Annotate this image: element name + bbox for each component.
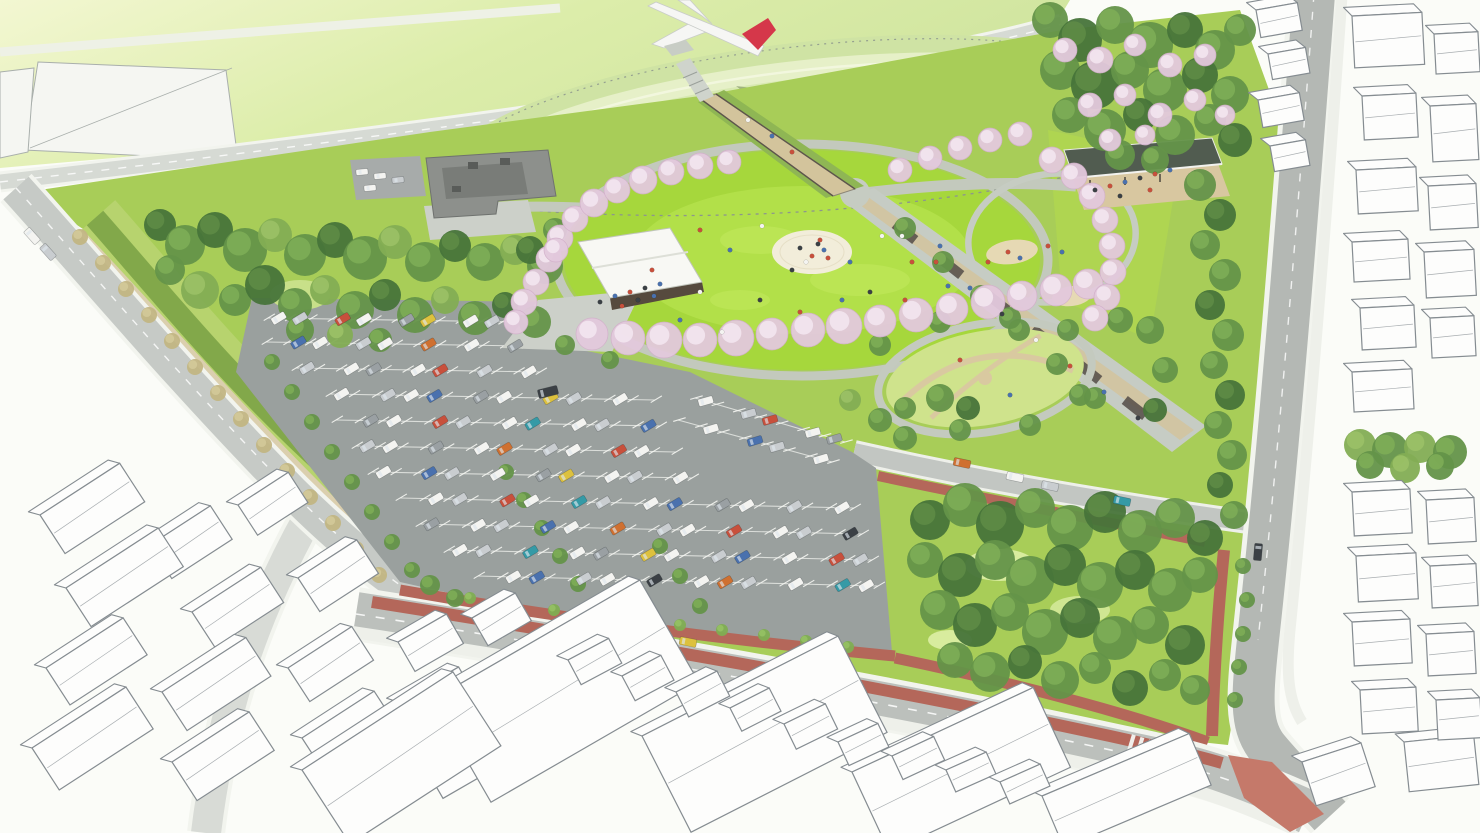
hedge (464, 592, 476, 604)
street-tree (118, 281, 134, 297)
sketch-building (1348, 158, 1419, 214)
cherry-blossom-tree (544, 238, 568, 262)
cherry-blossom-tree (1061, 163, 1087, 189)
person (826, 256, 831, 261)
parking-tree (284, 384, 300, 400)
cherry-blossom-tree (756, 318, 788, 350)
tree (1212, 319, 1244, 351)
tree (327, 322, 353, 348)
tree (956, 396, 980, 420)
cherry-blossom-tree (604, 177, 630, 203)
person (628, 290, 633, 295)
cherry-blossom-tree (1082, 305, 1108, 331)
garden-tree (894, 397, 916, 419)
street-shrub (1239, 592, 1255, 608)
person (790, 268, 795, 273)
person (868, 290, 873, 295)
person (946, 284, 951, 289)
car (374, 172, 386, 179)
person (1123, 180, 1128, 185)
cherry-blossom-tree (1078, 93, 1102, 117)
parking-tree (324, 444, 340, 460)
person (958, 358, 963, 363)
person (1008, 393, 1013, 398)
cherry-blossom-tree (718, 320, 754, 356)
person (770, 134, 775, 139)
tree (1041, 661, 1079, 699)
cherry-blossom-tree (658, 159, 684, 185)
tree (1190, 230, 1220, 260)
tree (1390, 453, 1420, 483)
tree (1220, 501, 1248, 529)
cherry-blossom-tree (864, 305, 896, 337)
cherry-blossom-tree (1099, 129, 1121, 151)
person (1136, 416, 1141, 421)
person (613, 294, 618, 299)
street-tree (72, 229, 88, 245)
tree (155, 255, 185, 285)
street-shrub (1235, 558, 1251, 574)
tree (907, 542, 943, 578)
person (986, 260, 991, 265)
person (652, 294, 657, 299)
cherry-blossom-tree (826, 308, 862, 344)
garden-tree (1019, 414, 1041, 436)
person (798, 246, 803, 251)
tree (1224, 14, 1256, 46)
paved-plot-2 (0, 68, 34, 158)
tree (937, 642, 973, 678)
cherry-blossom-tree (1135, 125, 1155, 145)
cherry-blossom-tree (646, 322, 682, 358)
person (804, 260, 809, 265)
cherry-blossom-tree (1099, 233, 1125, 259)
tree (1209, 259, 1241, 291)
person (1138, 176, 1143, 181)
person (1034, 338, 1039, 343)
parking-tree (404, 562, 420, 578)
tree (1152, 357, 1178, 383)
street-shrub (1227, 692, 1243, 708)
person (840, 298, 845, 303)
person (1093, 188, 1098, 193)
tree (1182, 557, 1218, 593)
cherry-blossom-tree (1184, 89, 1206, 111)
tree (1426, 452, 1454, 480)
parking-tree (552, 548, 568, 564)
cherry-blossom-tree (629, 166, 657, 194)
tree (431, 286, 459, 314)
tree (1204, 199, 1236, 231)
tree (1184, 169, 1216, 201)
street-shrub (1235, 626, 1251, 642)
cherry-blossom-tree (936, 293, 968, 325)
hedge (674, 619, 686, 631)
person (698, 228, 703, 233)
parking-tree (264, 354, 280, 370)
tree (1131, 606, 1169, 644)
garden-tree (949, 419, 971, 441)
garden-tree (1057, 319, 1079, 341)
cherry-blossom-tree (1100, 259, 1126, 285)
tree (1204, 411, 1232, 439)
tree (1180, 675, 1210, 705)
person (678, 318, 683, 323)
sketch-building (1344, 360, 1414, 412)
person (758, 298, 763, 303)
tree (1141, 146, 1169, 174)
tree (555, 335, 575, 355)
person (903, 298, 908, 303)
person (1168, 168, 1173, 173)
person (1046, 244, 1051, 249)
person (1153, 172, 1158, 177)
person (968, 286, 973, 291)
person (880, 234, 885, 239)
tree (1217, 440, 1247, 470)
street-tree (256, 437, 272, 453)
cherry-blossom-tree (576, 318, 608, 350)
cherry-blossom-tree (580, 189, 608, 217)
person (650, 268, 655, 273)
tree (970, 652, 1010, 692)
street-tree (210, 385, 226, 401)
tree (420, 575, 440, 595)
building-parking-lot (350, 156, 426, 200)
person (760, 224, 765, 229)
cherry-blossom-tree (918, 146, 942, 170)
tree (1165, 625, 1205, 665)
person (1068, 364, 1073, 369)
garden-tree (1069, 384, 1091, 406)
person (620, 304, 625, 309)
tree (926, 384, 954, 412)
car (364, 184, 376, 191)
cherry-blossom-tree (1158, 53, 1182, 77)
tree (181, 271, 219, 309)
person (598, 300, 603, 305)
promenade-tree (894, 217, 916, 239)
person (810, 254, 815, 259)
cherry-blossom-tree (1092, 207, 1118, 233)
promenade-tree (1046, 353, 1068, 375)
cherry-blossom-tree (1007, 281, 1037, 311)
person (643, 286, 648, 291)
cherry-blossom-tree (1040, 274, 1072, 306)
person (1148, 188, 1153, 193)
cherry-blossom-tree (504, 310, 528, 334)
tree (1200, 351, 1228, 379)
tree (1187, 520, 1223, 556)
tree (397, 297, 433, 333)
parking-tree (304, 414, 320, 430)
cherry-blossom-tree (687, 153, 713, 179)
person (822, 248, 827, 253)
tree (245, 265, 285, 305)
tree (1008, 645, 1042, 679)
parking-tree (344, 474, 360, 490)
cherry-blossom-tree (1194, 44, 1216, 66)
street-tree (187, 359, 203, 375)
tree (953, 603, 997, 647)
street-tree (233, 411, 249, 427)
person (848, 260, 853, 265)
sketch-building (1348, 544, 1419, 602)
hedge (716, 624, 728, 636)
tree (1136, 316, 1164, 344)
cherry-blossom-tree (948, 136, 972, 160)
person (746, 118, 751, 123)
person (728, 248, 733, 253)
street-shrub (1231, 659, 1247, 675)
aerial-park-illustration (0, 0, 1480, 833)
tree (1195, 290, 1225, 320)
person (1006, 250, 1011, 255)
cherry-blossom-tree (1087, 47, 1113, 73)
sketch-building (1344, 610, 1413, 666)
person (1102, 390, 1107, 395)
cherry-blossom-tree (978, 128, 1002, 152)
cherry-blossom-tree (1215, 105, 1235, 125)
person (1118, 194, 1123, 199)
tree (369, 279, 401, 311)
cherry-blossom-tree (1124, 34, 1146, 56)
person (790, 150, 795, 155)
parking-tree (364, 504, 380, 520)
sketch-building (1344, 3, 1425, 68)
person (720, 330, 725, 335)
person (1000, 312, 1005, 317)
sketch-building (1344, 480, 1413, 536)
person (910, 260, 915, 265)
cherry-blossom-tree (1039, 147, 1065, 173)
tree (1356, 451, 1384, 479)
sketch-building (1344, 230, 1410, 282)
hedge (758, 629, 770, 641)
person (934, 260, 939, 265)
cherry-blossom-tree (1008, 122, 1032, 146)
person (1060, 250, 1065, 255)
rooftop-unit (500, 158, 510, 165)
car (392, 176, 404, 183)
tree (839, 389, 861, 411)
tree (446, 589, 464, 607)
cherry-blossom-tree (1079, 183, 1105, 209)
person (938, 244, 943, 249)
person (816, 242, 821, 247)
cherry-blossom-tree (1148, 103, 1172, 127)
tree (868, 408, 892, 432)
person (1018, 256, 1023, 261)
car (356, 168, 368, 175)
tree (1207, 472, 1233, 498)
cherry-blossom-tree (683, 323, 717, 357)
tree (1215, 380, 1245, 410)
cherry-blossom-tree (717, 150, 741, 174)
parking-tree (692, 598, 708, 614)
tree (893, 426, 917, 450)
tree (1143, 398, 1167, 422)
tree (439, 230, 471, 262)
cherry-blossom-tree (888, 158, 912, 182)
park-rendering-stage (0, 0, 1480, 833)
street-tree (164, 333, 180, 349)
person (698, 290, 703, 295)
community-building-roof-inner (442, 162, 528, 199)
car (1253, 543, 1262, 561)
person (900, 234, 905, 239)
cherry-blossom-tree (611, 321, 645, 355)
parking-tree (384, 534, 400, 550)
sketch-building (1352, 678, 1419, 734)
person (636, 298, 641, 303)
paved-plot (24, 62, 238, 160)
person (1108, 184, 1113, 189)
street-tree (95, 255, 111, 271)
central-sand-circle (772, 230, 852, 274)
tree (1107, 307, 1133, 333)
tree (1111, 51, 1149, 89)
cherry-blossom-tree (1114, 84, 1136, 106)
tree (1079, 652, 1111, 684)
tree (1149, 659, 1181, 691)
rooftop-unit (452, 186, 461, 192)
tree (1218, 123, 1252, 157)
tree (601, 351, 619, 369)
street-tree (141, 307, 157, 323)
tree (466, 243, 504, 281)
cherry-blossom-tree (899, 298, 933, 332)
parking-tree (672, 568, 688, 584)
hedge (548, 604, 560, 616)
street-tree (325, 515, 341, 531)
cherry-blossom-tree (1053, 38, 1077, 62)
tree (405, 242, 445, 282)
sketch-building (1352, 296, 1417, 350)
tree (310, 275, 340, 305)
tree (1112, 670, 1148, 706)
cherry-blossom-tree (791, 313, 825, 347)
rooftop-unit (468, 162, 478, 169)
person (658, 282, 663, 287)
person (798, 310, 803, 315)
